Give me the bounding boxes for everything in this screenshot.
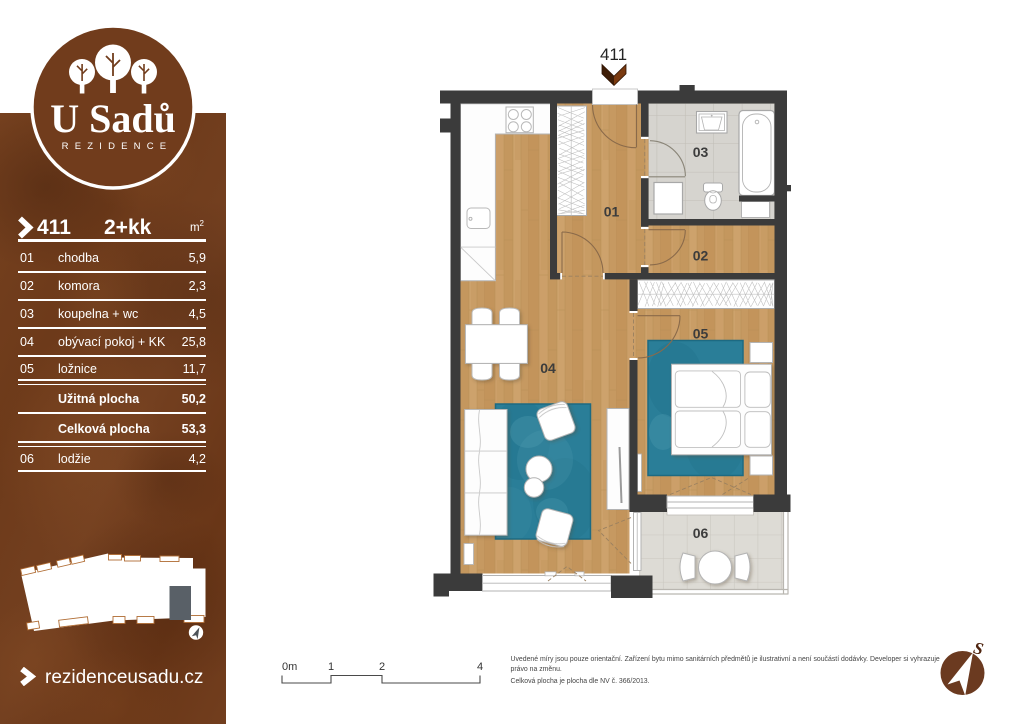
svg-text:0m: 0m [282, 661, 297, 673]
svg-text:02: 02 [693, 248, 709, 264]
svg-text:04: 04 [540, 360, 556, 376]
svg-text:05: 05 [693, 326, 709, 342]
svg-text:01: 01 [604, 204, 620, 220]
svg-text:Celková plocha je plocha dle N: Celková plocha je plocha dle NV č. 366/2… [511, 678, 650, 685]
svg-text:4: 4 [477, 661, 483, 673]
svg-text:právo na změnu.: právo na změnu. [511, 666, 562, 673]
svg-text:2: 2 [379, 661, 385, 673]
svg-text:03: 03 [693, 144, 709, 160]
svg-text:Uvedené míry jsou pouze orient: Uvedené míry jsou pouze orientační. Zaří… [511, 655, 940, 663]
svg-text:S: S [971, 638, 985, 659]
svg-text:1: 1 [328, 661, 334, 673]
svg-text:411: 411 [600, 45, 627, 64]
svg-text:06: 06 [693, 525, 709, 541]
